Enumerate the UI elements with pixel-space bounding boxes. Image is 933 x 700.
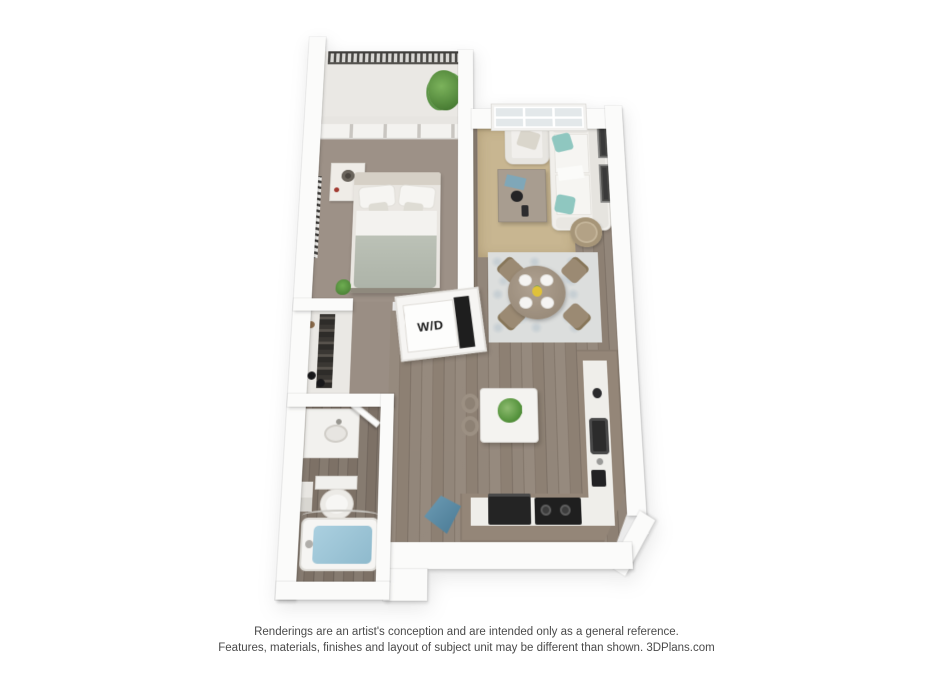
window-pane xyxy=(525,118,552,126)
wall-bathroom-bottom xyxy=(275,582,389,600)
window-pane xyxy=(496,108,523,116)
burner xyxy=(560,505,571,516)
dining-table xyxy=(508,266,567,320)
island-plant xyxy=(498,398,523,422)
toilet-tank xyxy=(315,476,358,490)
living-room-window xyxy=(492,104,587,130)
countertop-appliance xyxy=(591,470,606,487)
disclaimer-line-1: Renderings are an artist's conception an… xyxy=(0,624,933,640)
towels xyxy=(300,482,313,512)
nightstand-decor xyxy=(334,187,339,192)
island-stool xyxy=(461,394,479,414)
balcony-railing xyxy=(328,51,460,64)
range-cooktop xyxy=(534,498,581,525)
balcony-sliding-door xyxy=(319,116,460,139)
armchair-pillow xyxy=(516,129,541,151)
bathtub xyxy=(299,518,380,571)
coffee-table-vase xyxy=(511,191,523,202)
coffee-table-books xyxy=(504,174,526,190)
disclaimer-text: Renderings are an artist's conception an… xyxy=(0,624,933,656)
bed-sheet xyxy=(356,211,437,237)
closet-floor xyxy=(305,311,353,394)
closet-clothes-rod xyxy=(316,314,335,388)
lamp xyxy=(341,170,354,182)
burner xyxy=(540,505,551,516)
window-pane xyxy=(555,118,582,126)
coffee-table xyxy=(497,169,547,222)
floorplan-page: W/D Renderings are an artist's conceptio… xyxy=(0,0,933,700)
window-pane xyxy=(496,118,523,126)
plate xyxy=(518,274,532,286)
laundry-closet: W/D xyxy=(394,287,487,362)
wall-closet-top xyxy=(293,298,353,310)
bathroom-sink xyxy=(324,425,348,443)
plate xyxy=(540,274,554,286)
window-pane xyxy=(555,108,582,116)
table-centerpiece xyxy=(532,286,542,296)
bathroom-vanity xyxy=(303,409,360,459)
bathroom-faucet xyxy=(336,419,342,425)
island-stool xyxy=(461,416,479,436)
bed-blanket xyxy=(354,236,437,288)
kitchen-sink xyxy=(589,418,610,454)
coffee-table-decor xyxy=(521,205,528,216)
disclaimer-line-2: Features, materials, finishes and layout… xyxy=(0,640,933,656)
wall-bedroom-living-divider xyxy=(458,50,474,311)
bed xyxy=(350,172,441,293)
balcony-plant xyxy=(428,70,462,110)
kitchen-faucet xyxy=(596,458,603,465)
bathtub-water xyxy=(312,526,372,564)
floorplan-rendering: W/D xyxy=(275,30,652,605)
wall-bathroom-top xyxy=(287,394,394,407)
kitchen-island xyxy=(480,388,539,443)
washer-dryer-unit: W/D xyxy=(403,299,459,353)
teal-pillow xyxy=(554,194,576,215)
refrigerator xyxy=(488,494,531,525)
round-basket-table xyxy=(570,217,603,247)
window-pane xyxy=(525,108,552,116)
plate xyxy=(519,297,533,309)
wall-exterior-bottom xyxy=(384,542,633,569)
countertop-appliance xyxy=(592,388,602,398)
plate xyxy=(540,297,554,309)
washer-dryer-label: W/D xyxy=(417,317,445,334)
closet-shoe xyxy=(307,371,316,379)
headboard xyxy=(354,172,441,185)
